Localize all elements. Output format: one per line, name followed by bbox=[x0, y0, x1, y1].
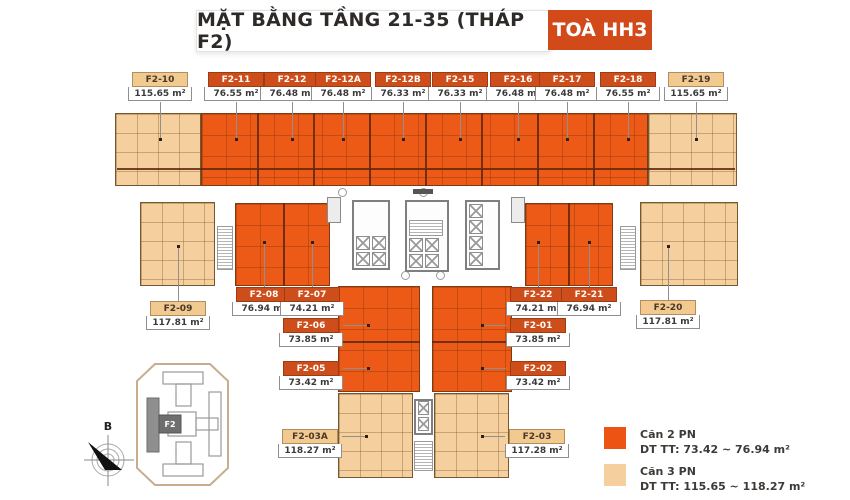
legend-item-2pn: Căn 2 PN DT TT: 73.42 ~ 76.94 m² bbox=[604, 427, 790, 457]
axis-marker bbox=[338, 188, 347, 197]
unit-id: F2-11 bbox=[208, 72, 264, 87]
leader-line bbox=[160, 102, 161, 140]
lift-icon bbox=[469, 252, 483, 266]
compass-icon: B bbox=[82, 418, 138, 490]
leader-dot bbox=[481, 324, 484, 327]
balcony-line bbox=[117, 168, 735, 170]
leader-dot bbox=[291, 138, 294, 141]
unit-area: 73.42 m² bbox=[279, 376, 343, 390]
elevator-core-center bbox=[405, 200, 449, 272]
leader-dot bbox=[588, 241, 591, 244]
stairwell bbox=[620, 226, 636, 270]
unit-id: F2-10 bbox=[132, 72, 188, 87]
lift-icon bbox=[418, 417, 429, 431]
legend-label-2pn: Căn 2 PN bbox=[640, 427, 790, 442]
leader-line bbox=[343, 325, 368, 326]
leader-dot bbox=[367, 324, 370, 327]
unit-divider bbox=[338, 341, 420, 343]
elevator-core-left bbox=[352, 200, 390, 270]
unit-id: F2-06 bbox=[283, 318, 339, 333]
elevator-stub bbox=[327, 197, 341, 223]
leader-dot bbox=[367, 367, 370, 370]
legend-range-3pn: DT TT: 115.65 ~ 118.27 m² bbox=[640, 479, 805, 494]
elevator-stub bbox=[511, 197, 525, 223]
unit-area: 115.65 m² bbox=[664, 87, 728, 101]
leader-line bbox=[518, 102, 519, 140]
lift-icon bbox=[372, 252, 386, 266]
unit-area: 74.21 m² bbox=[280, 302, 344, 316]
unit-divider bbox=[425, 113, 427, 186]
lift-icon bbox=[356, 252, 370, 266]
leader-line bbox=[312, 243, 313, 287]
leader-line bbox=[589, 243, 590, 287]
unit-area: 76.48 m² bbox=[311, 87, 375, 101]
unit-divider bbox=[537, 113, 539, 186]
unit-block-f2-20 bbox=[640, 202, 738, 286]
leader-dot bbox=[365, 435, 368, 438]
leader-line bbox=[236, 102, 237, 140]
leader-line bbox=[538, 243, 539, 287]
unit-divider bbox=[568, 203, 570, 286]
leader-dot bbox=[177, 245, 180, 248]
stairs bbox=[414, 441, 433, 471]
unit-label-f2-17: F2-17 76.48 m² bbox=[535, 72, 599, 101]
unit-area: 76.94 m² bbox=[557, 302, 621, 316]
unit-label-f2-21: F2-21 76.94 m² bbox=[557, 287, 621, 316]
unit-id: F2-18 bbox=[600, 72, 656, 87]
unit-id: F2-19 bbox=[668, 72, 724, 87]
leader-dot bbox=[481, 367, 484, 370]
unit-label-f2-20: F2-20 117.81 m² bbox=[636, 300, 700, 329]
unit-label-f2-07: F2-07 74.21 m² bbox=[280, 287, 344, 316]
unit-block-f2-19 bbox=[648, 113, 737, 186]
unit-id: F2-12B bbox=[375, 72, 431, 87]
tower-f2-wing bbox=[147, 398, 159, 452]
unit-divider bbox=[313, 113, 315, 186]
unit-area: 73.85 m² bbox=[279, 333, 343, 347]
leader-dot bbox=[667, 245, 670, 248]
unit-area: 117.81 m² bbox=[146, 316, 210, 330]
lift-icon bbox=[418, 401, 429, 415]
leader-line bbox=[483, 368, 506, 369]
floorplan-page: MẶT BẰNG TẦNG 21-35 (THÁP F2) TOÀ HH3 bbox=[0, 0, 850, 500]
lift-icon bbox=[425, 238, 439, 252]
unit-id: F2-03 bbox=[509, 429, 565, 444]
unit-id: F2-03A bbox=[282, 429, 338, 444]
leader-dot bbox=[263, 241, 266, 244]
leader-dot bbox=[459, 138, 462, 141]
unit-area: 76.55 m² bbox=[596, 87, 660, 101]
unit-label-f2-05: F2-05 73.42 m² bbox=[279, 361, 343, 390]
stairs bbox=[409, 220, 443, 236]
unit-id: F2-20 bbox=[640, 300, 696, 315]
legend-swatch-3pn bbox=[604, 464, 626, 486]
stairwell bbox=[217, 226, 233, 270]
unit-area: 73.42 m² bbox=[506, 376, 570, 390]
lift-icon bbox=[409, 254, 423, 268]
legend-label-3pn: Căn 3 PN bbox=[640, 464, 805, 479]
unit-label-f2-06: F2-06 73.85 m² bbox=[279, 318, 343, 347]
leader-dot bbox=[537, 241, 540, 244]
leader-line bbox=[342, 436, 367, 437]
unit-label-f2-18: F2-18 76.55 m² bbox=[596, 72, 660, 101]
leader-line bbox=[343, 102, 344, 140]
leader-line bbox=[264, 243, 265, 287]
leader-dot bbox=[235, 138, 238, 141]
unit-block-f2-10 bbox=[115, 113, 201, 186]
unit-id: F2-01 bbox=[510, 318, 566, 333]
unit-label-f2-03a: F2-03A 118.27 m² bbox=[278, 429, 342, 458]
leader-line bbox=[178, 247, 179, 301]
unit-id: F2-21 bbox=[561, 287, 617, 302]
core-link bbox=[413, 189, 433, 194]
legend-swatch-2pn bbox=[604, 427, 626, 449]
leader-line bbox=[343, 368, 368, 369]
unit-label-f2-09: F2-09 117.81 m² bbox=[146, 301, 210, 330]
unit-id: F2-05 bbox=[283, 361, 339, 376]
lift-icon bbox=[469, 236, 483, 250]
lift-icon bbox=[372, 236, 386, 250]
lift-icon bbox=[425, 254, 439, 268]
unit-area: 117.28 m² bbox=[505, 444, 569, 458]
lift-icon bbox=[356, 236, 370, 250]
unit-divider bbox=[369, 113, 371, 186]
leader-dot bbox=[159, 138, 162, 141]
unit-block-f2-01-f2-02 bbox=[432, 286, 512, 392]
unit-label-f2-12a: F2-12A 76.48 m² bbox=[311, 72, 375, 101]
unit-block-f2-06-f2-05 bbox=[338, 286, 420, 392]
unit-area: 76.55 m² bbox=[204, 87, 268, 101]
leader-line bbox=[628, 102, 629, 140]
unit-area: 117.81 m² bbox=[636, 315, 700, 329]
leader-dot bbox=[566, 138, 569, 141]
minimap-tower-label: F2 bbox=[164, 420, 175, 429]
unit-area: 118.27 m² bbox=[278, 444, 342, 458]
leader-dot bbox=[402, 138, 405, 141]
unit-label-f2-11: F2-11 76.55 m² bbox=[204, 72, 268, 101]
lift-icon bbox=[469, 204, 483, 218]
unit-label-f2-15: F2-15 76.33 m² bbox=[428, 72, 492, 101]
leader-dot bbox=[311, 241, 314, 244]
unit-area: 76.33 m² bbox=[428, 87, 492, 101]
unit-divider bbox=[432, 341, 512, 343]
unit-label-f2-01: F2-01 73.85 m² bbox=[506, 318, 570, 347]
unit-id: F2-17 bbox=[539, 72, 595, 87]
unit-label-f2-19: F2-19 115.65 m² bbox=[664, 72, 728, 101]
unit-label-f2-10: F2-10 115.65 m² bbox=[128, 72, 192, 101]
leader-line bbox=[482, 436, 505, 437]
axis-marker bbox=[401, 271, 410, 280]
unit-label-f2-02: F2-02 73.42 m² bbox=[506, 361, 570, 390]
building-badge: TOÀ HH3 bbox=[548, 10, 652, 50]
lift-icon bbox=[469, 220, 483, 234]
unit-area: 73.85 m² bbox=[506, 333, 570, 347]
axis-marker bbox=[436, 271, 445, 280]
leader-dot bbox=[695, 138, 698, 141]
lift-icon bbox=[409, 238, 423, 252]
leader-dot bbox=[517, 138, 520, 141]
leader-line bbox=[567, 102, 568, 140]
leader-line bbox=[483, 325, 506, 326]
unit-id: F2-07 bbox=[284, 287, 340, 302]
unit-label-f2-03: F2-03 117.28 m² bbox=[505, 429, 569, 458]
unit-divider bbox=[593, 113, 595, 186]
leader-dot bbox=[481, 435, 484, 438]
legend-item-3pn: Căn 3 PN DT TT: 115.65 ~ 118.27 m² bbox=[604, 464, 805, 494]
unit-id: F2-02 bbox=[510, 361, 566, 376]
unit-id: F2-12A bbox=[315, 72, 371, 87]
legend-range-2pn: DT TT: 73.42 ~ 76.94 m² bbox=[640, 442, 790, 457]
leader-line bbox=[668, 247, 669, 300]
unit-area: 115.65 m² bbox=[128, 87, 192, 101]
unit-divider bbox=[283, 203, 285, 286]
unit-area: 76.48 m² bbox=[535, 87, 599, 101]
unit-id: F2-09 bbox=[150, 301, 206, 316]
leader-line bbox=[403, 102, 404, 140]
leader-dot bbox=[342, 138, 345, 141]
unit-area: 76.33 m² bbox=[371, 87, 435, 101]
leader-dot bbox=[627, 138, 630, 141]
elevator-core-bottom bbox=[414, 399, 433, 435]
compass-north-label: B bbox=[104, 420, 112, 433]
unit-divider bbox=[481, 113, 483, 186]
leader-line bbox=[460, 102, 461, 140]
elevator-core-right bbox=[465, 200, 500, 270]
unit-id: F2-15 bbox=[432, 72, 488, 87]
unit-divider bbox=[257, 113, 259, 186]
unit-label-f2-12b: F2-12B 76.33 m² bbox=[371, 72, 435, 101]
leader-line bbox=[292, 102, 293, 140]
site-minimap: F2 bbox=[135, 362, 230, 487]
leader-line bbox=[696, 102, 697, 140]
page-title: MẶT BẰNG TẦNG 21-35 (THÁP F2) bbox=[196, 10, 550, 52]
